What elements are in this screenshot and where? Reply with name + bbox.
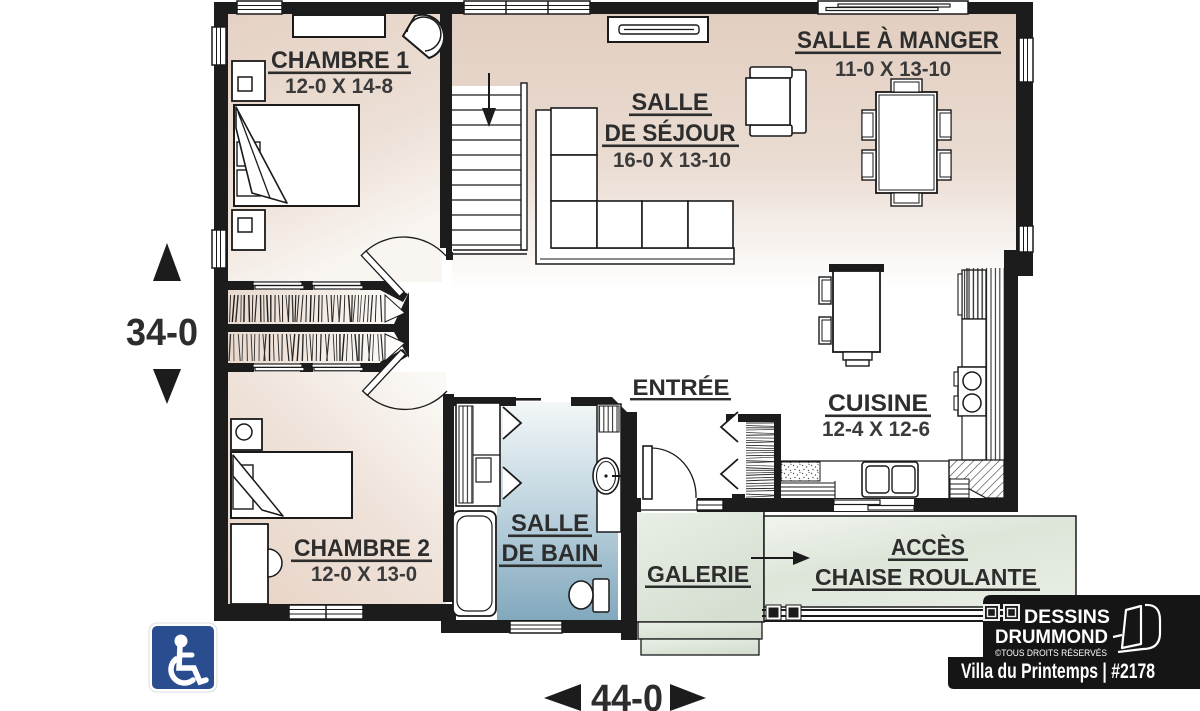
svg-text:DRUMMOND: DRUMMOND bbox=[995, 627, 1108, 648]
svg-text:SALLE: SALLE bbox=[511, 510, 589, 537]
svg-text:Villa du Printemps | #2178: Villa du Printemps | #2178 bbox=[961, 660, 1155, 683]
svg-text:DESSINS: DESSINS bbox=[1024, 607, 1110, 628]
svg-text:CHAMBRE 1: CHAMBRE 1 bbox=[271, 47, 409, 74]
svg-text:CUISINE: CUISINE bbox=[828, 390, 928, 417]
svg-text:SALLE À MANGER: SALLE À MANGER bbox=[797, 26, 999, 54]
svg-text:16-0 X 13-10: 16-0 X 13-10 bbox=[613, 149, 731, 172]
svg-text:12-0 X 14-8: 12-0 X 14-8 bbox=[285, 75, 393, 98]
svg-text:44-0: 44-0 bbox=[591, 678, 663, 711]
svg-text:DE BAIN: DE BAIN bbox=[502, 540, 599, 567]
svg-text:11-0 X 13-10: 11-0 X 13-10 bbox=[835, 58, 951, 81]
svg-text:SALLE: SALLE bbox=[632, 89, 709, 116]
svg-text:DE SÉJOUR: DE SÉJOUR bbox=[605, 119, 736, 147]
svg-text:CHAMBRE 2: CHAMBRE 2 bbox=[294, 535, 430, 562]
svg-text:©TOUS DROITS RÉSERVÉS: ©TOUS DROITS RÉSERVÉS bbox=[995, 648, 1107, 658]
svg-text:ACCÈS: ACCÈS bbox=[891, 533, 965, 560]
svg-text:ENTRÉE: ENTRÉE bbox=[633, 375, 730, 400]
svg-text:CHAISE ROULANTE: CHAISE ROULANTE bbox=[815, 564, 1037, 590]
svg-text:12-4 X 12-6: 12-4 X 12-6 bbox=[822, 418, 930, 441]
svg-text:12-0 X 13-0: 12-0 X 13-0 bbox=[311, 563, 417, 586]
svg-text:GALERIE: GALERIE bbox=[647, 561, 749, 587]
svg-text:34-0: 34-0 bbox=[126, 312, 198, 354]
